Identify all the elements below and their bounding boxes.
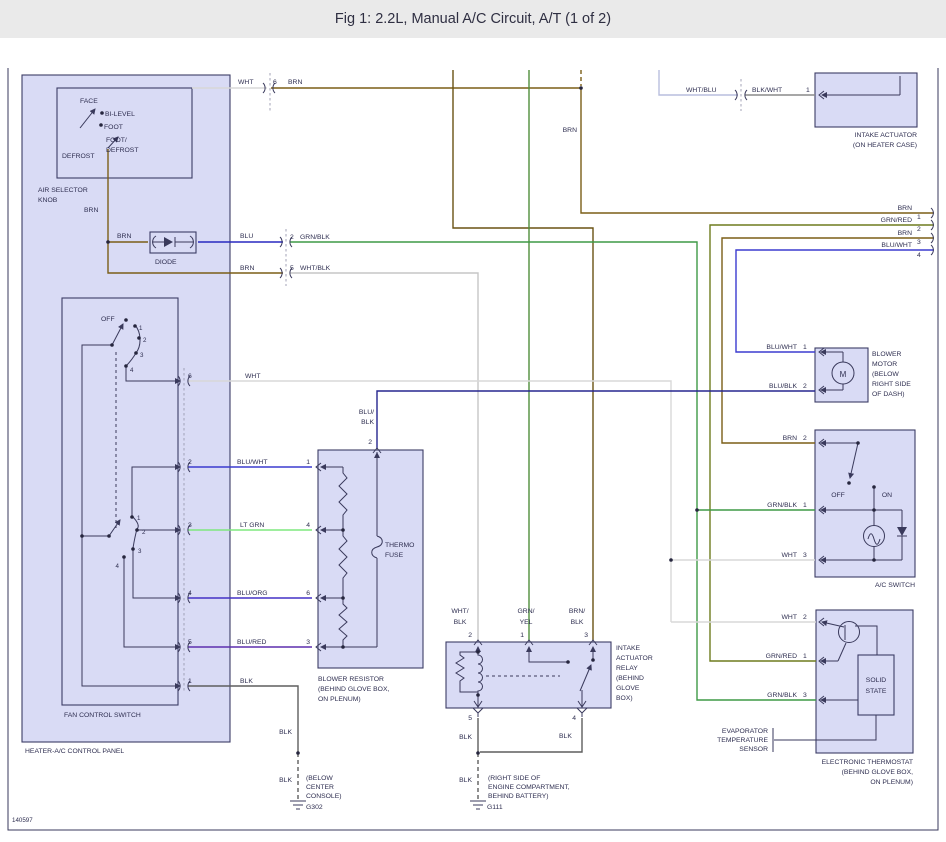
label-evap-2: TEMPERATURE bbox=[717, 737, 768, 744]
wiring-diagram-page: Fig 1: 2.2L, Manual A/C Circuit, A/T (1 … bbox=[0, 0, 946, 842]
svg-text:1: 1 bbox=[803, 502, 807, 509]
wire-blu-blk bbox=[377, 391, 815, 449]
label-brn-mid: BRN bbox=[563, 127, 577, 134]
svg-text:3: 3 bbox=[584, 632, 588, 639]
label-bilevel: BI-LEVEL bbox=[105, 111, 135, 118]
svg-text:2: 2 bbox=[188, 459, 192, 466]
svg-text:2: 2 bbox=[143, 337, 147, 344]
svg-text:4: 4 bbox=[130, 367, 134, 374]
label-ac-on: ON bbox=[882, 492, 892, 499]
label-relay-whtblk-1: WHT/ bbox=[451, 608, 468, 615]
svg-text:2: 2 bbox=[468, 632, 472, 639]
label-whtblu: WHT/BLU bbox=[686, 87, 717, 94]
svg-text:4: 4 bbox=[917, 252, 921, 259]
label-brn-3: BRN bbox=[240, 265, 254, 272]
label-motor-1: BLOWER bbox=[872, 351, 902, 358]
svg-text:1: 1 bbox=[137, 515, 141, 522]
label-blk-g111: BLK bbox=[459, 777, 472, 784]
label-brn-top: BRN bbox=[288, 79, 302, 86]
label-brn-2: BRN bbox=[117, 233, 131, 240]
wire-brn-blk-relay bbox=[453, 70, 593, 640]
label-defrost: DEFROST bbox=[62, 153, 94, 160]
label-edge-brn-3: BRN bbox=[898, 230, 912, 237]
svg-text:2: 2 bbox=[142, 529, 146, 536]
pin-2: 2 bbox=[290, 234, 294, 241]
label-g302-loc-3: CONSOLE) bbox=[306, 793, 342, 800]
label-fan-control-switch: FAN CONTROL SWITCH bbox=[64, 712, 141, 719]
label-fan-off: OFF bbox=[101, 316, 115, 323]
label-blkwht: BLK/WHT bbox=[752, 87, 782, 94]
label-motor-bluwht: BLU/WHT bbox=[766, 344, 797, 351]
svg-text:4: 4 bbox=[306, 522, 310, 529]
label-relay-whtblk-2: BLK bbox=[454, 619, 467, 626]
svg-text:1: 1 bbox=[188, 678, 192, 685]
label-blublk-1: BLU/ bbox=[359, 409, 374, 416]
svg-text:1: 1 bbox=[917, 214, 921, 221]
label-motor-3: (BELOW bbox=[872, 371, 899, 378]
label-ac-grnblk: GRN/BLK bbox=[767, 502, 797, 509]
label-relay-1: INTAKE bbox=[616, 645, 641, 652]
wire-blu-wht-motor bbox=[736, 250, 934, 352]
label-th-wht: WHT bbox=[782, 614, 797, 621]
label-relay-brnblk-1: BRN/ bbox=[569, 608, 585, 615]
label-motor-4: RIGHT SIDE bbox=[872, 381, 911, 388]
label-relay-brnblk-2: BLK bbox=[571, 619, 584, 626]
label-g302: G302 bbox=[306, 804, 323, 811]
circuit-diagram: 140597 FACE BI-LEVEL FOOT FOOT/ DEFROST … bbox=[0, 0, 946, 842]
label-ltgrn: LT GRN bbox=[240, 522, 264, 529]
svg-text:3: 3 bbox=[138, 548, 142, 555]
blower-resistor-box bbox=[318, 450, 423, 668]
label-blower-resistor-3: ON PLENUM) bbox=[318, 696, 361, 703]
label-brn-1: BRN bbox=[84, 207, 98, 214]
svg-text:3: 3 bbox=[803, 692, 807, 699]
svg-text:6: 6 bbox=[188, 373, 192, 380]
label-footdef2: DEFROST bbox=[106, 147, 138, 154]
label-blured: BLU/RED bbox=[237, 639, 267, 646]
svg-text:2: 2 bbox=[803, 614, 807, 621]
label-blu: BLU bbox=[240, 233, 253, 240]
label-blower-resistor-2: (BEHIND GLOVE BOX, bbox=[318, 686, 389, 693]
solid-state-box bbox=[858, 655, 894, 715]
label-heater-panel: HEATER-A/C CONTROL PANEL bbox=[25, 748, 124, 755]
label-thermo: THERMO bbox=[385, 542, 414, 549]
label-motor-m: M bbox=[840, 370, 847, 379]
pin-5: 5 bbox=[290, 265, 294, 272]
label-blk-g302-1: BLK bbox=[279, 729, 292, 736]
label-relay-5: GLOVE bbox=[616, 685, 640, 692]
label-blk-g302-2: BLK bbox=[279, 777, 292, 784]
label-relay-grnyel-2: YEL bbox=[520, 619, 533, 626]
wire-brn-ac-switch bbox=[722, 238, 934, 443]
label-thermostat-2: (BEHIND GLOVE BOX, bbox=[842, 769, 913, 776]
label-knob: KNOB bbox=[38, 197, 58, 204]
label-foot: FOOT bbox=[104, 124, 123, 131]
svg-text:2: 2 bbox=[803, 383, 807, 390]
label-blk-relay5: BLK bbox=[459, 734, 472, 741]
svg-text:6: 6 bbox=[306, 590, 310, 597]
intake-actuator-box bbox=[815, 73, 917, 127]
svg-text:1: 1 bbox=[803, 653, 807, 660]
label-face: FACE bbox=[80, 98, 98, 105]
label-relay-2: ACTUATOR bbox=[616, 655, 653, 662]
label-blk-relay4: BLK bbox=[559, 733, 572, 740]
svg-text:3: 3 bbox=[306, 639, 310, 646]
label-edge-bluwht: BLU/WHT bbox=[881, 242, 912, 249]
label-ac-wht: WHT bbox=[782, 552, 797, 559]
ground-g111-icon bbox=[470, 801, 486, 809]
svg-text:3: 3 bbox=[140, 352, 144, 359]
svg-text:3: 3 bbox=[917, 239, 921, 246]
svg-text:1: 1 bbox=[803, 344, 807, 351]
label-relay-grnyel-1: GRN/ bbox=[518, 608, 535, 615]
label-th-grnblk: GRN/BLK bbox=[767, 692, 797, 699]
label-ac-switch: A/C SWITCH bbox=[875, 582, 915, 589]
label-g111: G111 bbox=[487, 804, 503, 811]
label-air-selector: AIR SELECTOR bbox=[38, 187, 88, 194]
svg-text:4: 4 bbox=[188, 590, 192, 597]
svg-text:3: 3 bbox=[803, 552, 807, 559]
label-motor-5: OF DASH) bbox=[872, 391, 904, 398]
label-motor-2: MOTOR bbox=[872, 361, 897, 368]
pin-6: 6 bbox=[273, 79, 277, 86]
label-g111-loc-1: (RIGHT SIDE OF bbox=[488, 775, 540, 782]
label-evap-3: SENSOR bbox=[739, 746, 768, 753]
label-blublk-2: BLK bbox=[361, 419, 374, 426]
label-ac-brn: BRN bbox=[783, 435, 797, 442]
svg-text:1: 1 bbox=[520, 632, 524, 639]
label-evap-1: EVAPORATOR bbox=[722, 728, 768, 735]
label-fuse: FUSE bbox=[385, 552, 404, 559]
label-blk-fan: BLK bbox=[240, 678, 253, 685]
svg-text:5: 5 bbox=[188, 639, 192, 646]
label-relay-3: RELAY bbox=[616, 665, 638, 672]
label-diode: DIODE bbox=[155, 259, 177, 266]
label-thermostat-1: ELECTRONIC THERMOSTAT bbox=[822, 759, 913, 766]
svg-text:1: 1 bbox=[139, 325, 143, 332]
label-intake-actuator-2: (ON HEATER CASE) bbox=[853, 142, 917, 149]
svg-text:2: 2 bbox=[368, 439, 372, 446]
label-motor-blublk: BLU/BLK bbox=[769, 383, 797, 390]
label-th-grnred: GRN/RED bbox=[766, 653, 797, 660]
label-state: STATE bbox=[866, 688, 887, 695]
fan-control-switch-box bbox=[62, 298, 178, 705]
ac-switch-box bbox=[815, 430, 915, 577]
drawing-number: 140597 bbox=[12, 817, 33, 824]
wire-wht-fan bbox=[188, 381, 671, 622]
svg-text:1: 1 bbox=[806, 87, 810, 94]
svg-text:2: 2 bbox=[917, 226, 921, 233]
label-solid: SOLID bbox=[866, 677, 886, 684]
label-grnblk: GRN/BLK bbox=[300, 234, 330, 241]
label-bluorg: BLU/ORG bbox=[237, 590, 268, 597]
label-thermostat-3: ON PLENUM) bbox=[870, 779, 913, 786]
svg-text:3: 3 bbox=[188, 522, 192, 529]
label-blower-resistor-1: BLOWER RESISTOR bbox=[318, 676, 384, 683]
label-whtblk: WHT/BLK bbox=[300, 265, 331, 272]
label-wht-fan: WHT bbox=[245, 373, 260, 380]
label-ac-off: OFF bbox=[831, 492, 845, 499]
label-edge-grnred: GRN/RED bbox=[881, 217, 912, 224]
label-bluwht-fan: BLU/WHT bbox=[237, 459, 268, 466]
svg-text:5: 5 bbox=[468, 715, 472, 722]
label-footdef1: FOOT/ bbox=[106, 137, 127, 144]
label-wht-top: WHT bbox=[238, 79, 253, 86]
air-selector-knob-box bbox=[57, 88, 192, 178]
svg-text:1: 1 bbox=[306, 459, 310, 466]
label-g111-loc-2: ENGINE COMPARTMENT, bbox=[488, 784, 570, 791]
label-g111-loc-3: BEHIND BATTERY) bbox=[488, 793, 549, 800]
svg-text:4: 4 bbox=[572, 715, 576, 722]
label-relay-6: BOX) bbox=[616, 695, 633, 702]
label-g302-loc-2: CENTER bbox=[306, 784, 334, 791]
svg-text:4: 4 bbox=[116, 563, 120, 570]
svg-text:2: 2 bbox=[803, 435, 807, 442]
label-intake-actuator-1: INTAKE ACTUATOR bbox=[855, 132, 917, 139]
ground-g302-icon bbox=[290, 801, 306, 809]
label-relay-4: (BEHIND bbox=[616, 675, 644, 682]
label-g302-loc-1: (BELOW bbox=[306, 775, 333, 782]
label-edge-brn-1: BRN bbox=[898, 205, 912, 212]
